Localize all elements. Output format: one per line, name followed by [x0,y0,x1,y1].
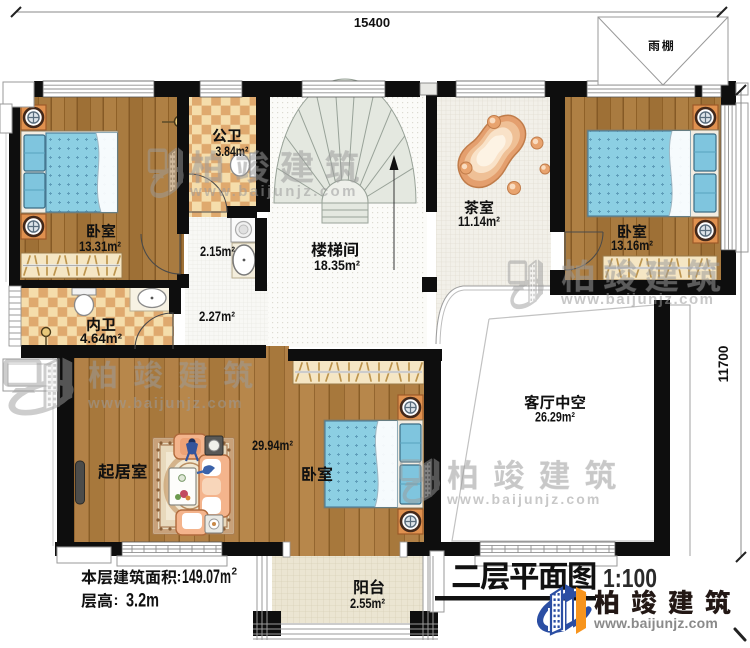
svg-text:www.baijunjz.com: www.baijunjz.com [446,491,601,507]
svg-text:www.baijunjz.com: www.baijunjz.com [87,395,243,412]
svg-text:15400: 15400 [354,15,390,30]
svg-text:13.16m²: 13.16m² [611,237,653,253]
svg-text:2.55m²: 2.55m² [350,595,385,611]
svg-text:2.27m²: 2.27m² [199,308,235,324]
svg-text:www.baijunjz.com: www.baijunjz.com [189,183,358,200]
svg-text:11.14m²: 11.14m² [458,213,500,229]
svg-text:149.07m: 149.07m [182,567,231,588]
svg-text:29.94m²: 29.94m² [252,437,293,453]
svg-text:www.baijunjz.com: www.baijunjz.com [593,615,718,631]
svg-text:2.15m²: 2.15m² [200,243,235,259]
svg-text:1:100: 1:100 [603,563,657,593]
svg-text:26.29m²: 26.29m² [535,409,575,425]
svg-text:13.31m²: 13.31m² [79,238,121,254]
svg-text:3.2m: 3.2m [126,591,159,612]
svg-text:2: 2 [232,567,238,578]
svg-text::: : [114,592,119,609]
svg-text:4.64m²: 4.64m² [80,330,122,346]
svg-text:18.35m²: 18.35m² [314,257,360,273]
svg-text:www.baijunjz.com: www.baijunjz.com [560,291,714,308]
svg-text::: : [177,569,182,586]
svg-text:11700: 11700 [716,346,731,383]
